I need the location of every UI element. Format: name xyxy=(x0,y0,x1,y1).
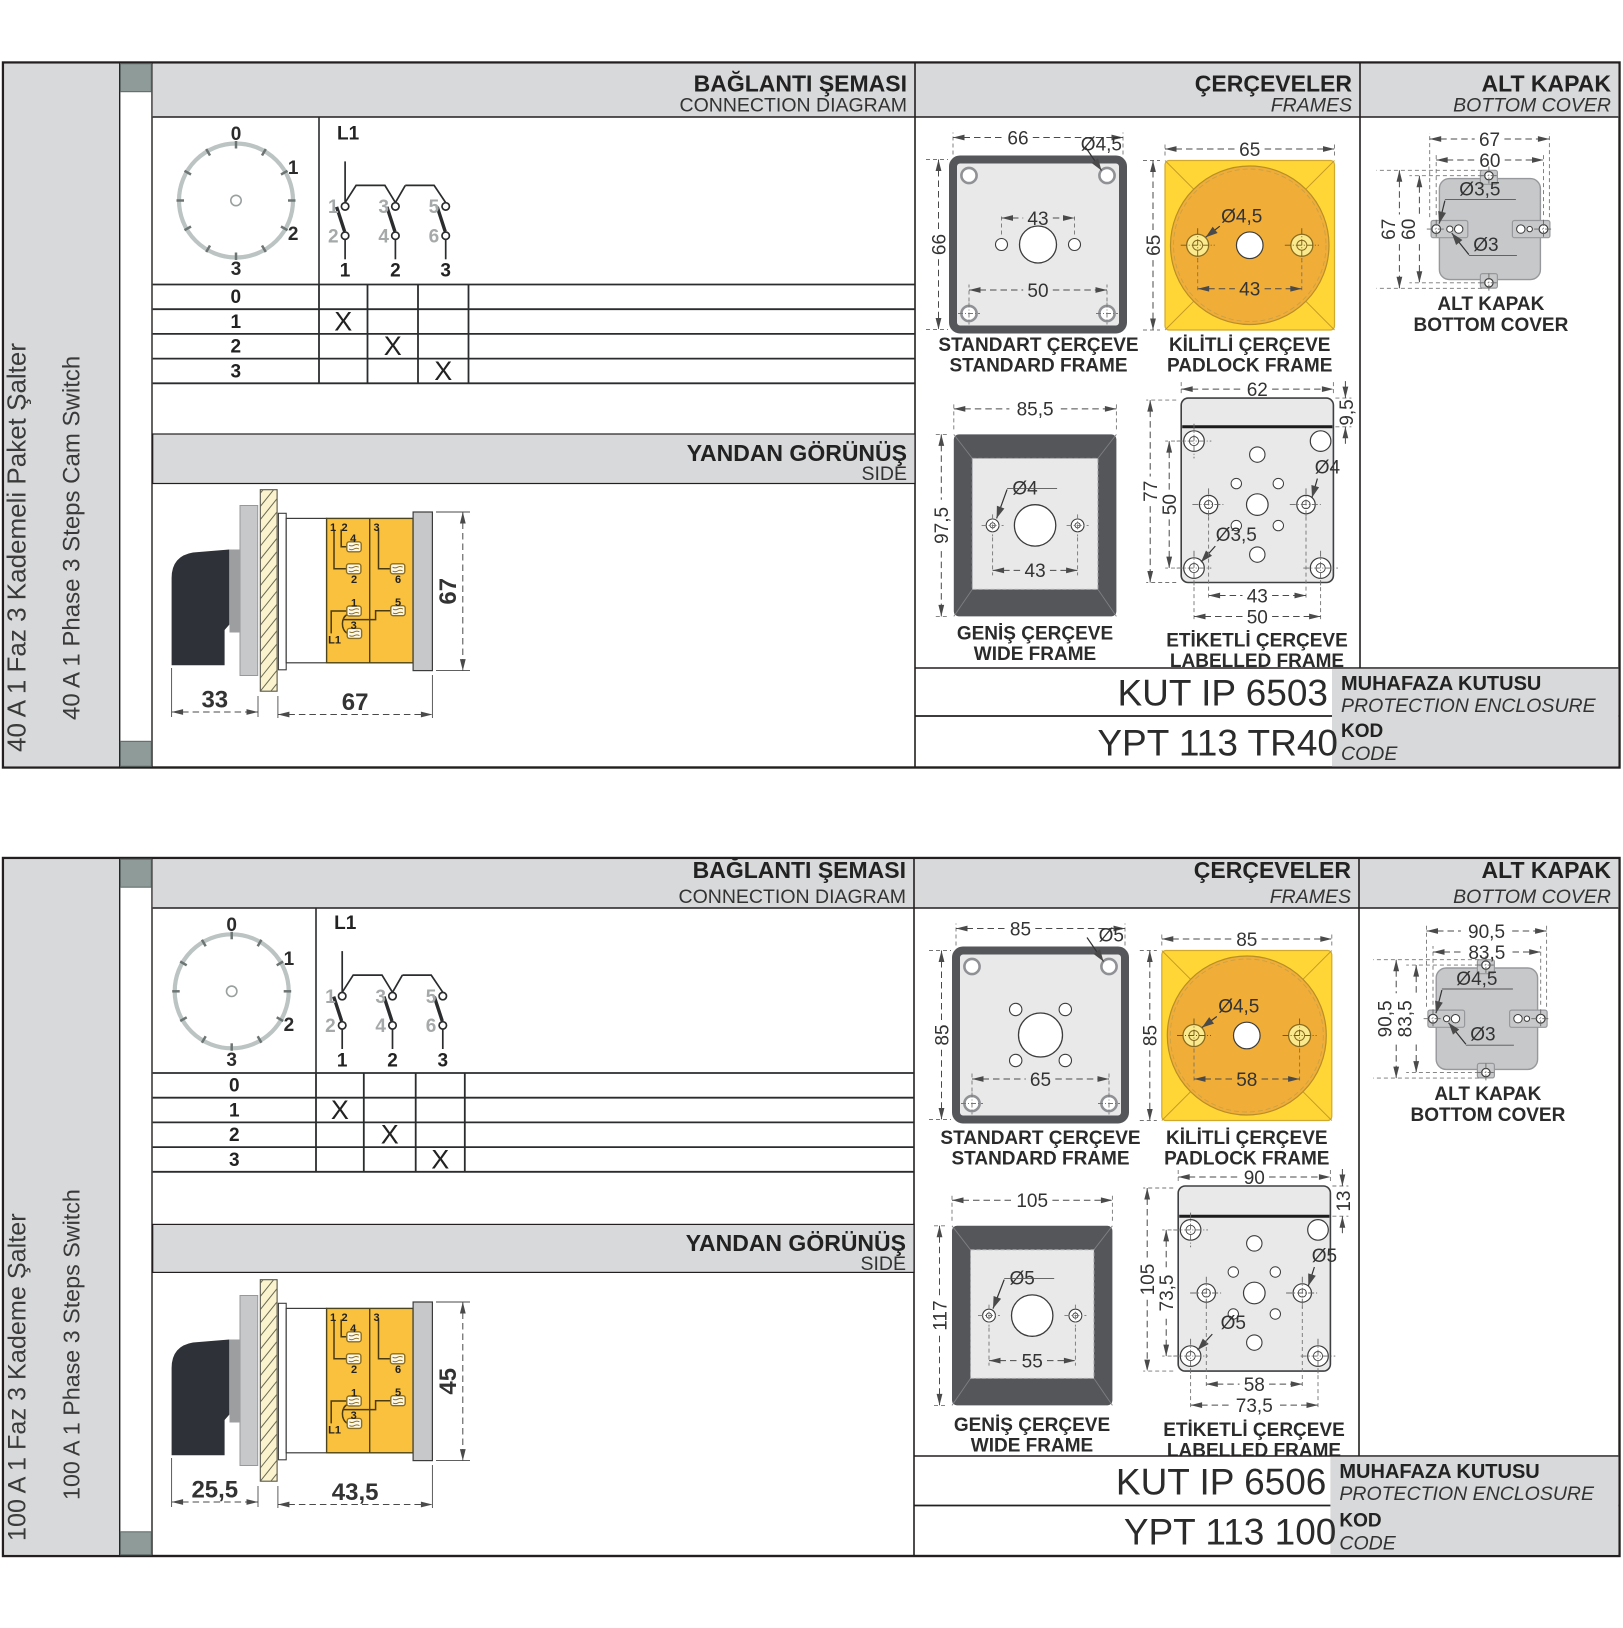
svg-text:Ø5: Ø5 xyxy=(1312,1246,1337,1267)
svg-text:65: 65 xyxy=(1144,235,1165,256)
svg-text:ÇERÇEVELER: ÇERÇEVELER xyxy=(1194,857,1352,883)
svg-text:3: 3 xyxy=(440,261,451,282)
svg-text:3: 3 xyxy=(226,1050,237,1071)
svg-text:X: X xyxy=(381,1120,399,1150)
svg-text:50: 50 xyxy=(1247,607,1268,628)
svg-text:Ø4: Ø4 xyxy=(1315,458,1341,479)
svg-text:GENİŞ ÇERÇEVE: GENİŞ ÇERÇEVE xyxy=(957,624,1113,645)
svg-text:1: 1 xyxy=(351,1388,357,1400)
svg-text:9,5: 9,5 xyxy=(1337,399,1358,425)
svg-text:85: 85 xyxy=(1010,919,1031,940)
svg-text:PADLOCK FRAME: PADLOCK FRAME xyxy=(1167,356,1332,377)
svg-text:STANDART ÇERÇEVE: STANDART ÇERÇEVE xyxy=(938,335,1138,356)
svg-text:X: X xyxy=(434,356,452,386)
svg-text:3: 3 xyxy=(231,259,242,280)
svg-text:1: 1 xyxy=(330,522,336,534)
svg-text:BOTTOM COVER: BOTTOM COVER xyxy=(1453,886,1611,908)
svg-text:Ø4,5: Ø4,5 xyxy=(1221,206,1262,227)
svg-text:KİLİTLİ ÇERÇEVE: KİLİTLİ ÇERÇEVE xyxy=(1166,1128,1328,1149)
svg-text:Ø3: Ø3 xyxy=(1470,1025,1495,1046)
svg-text:5: 5 xyxy=(395,1387,401,1399)
svg-text:1: 1 xyxy=(330,1312,336,1324)
svg-text:43: 43 xyxy=(1239,280,1260,301)
svg-text:85,5: 85,5 xyxy=(1017,400,1054,421)
svg-text:1: 1 xyxy=(325,987,336,1008)
svg-text:2: 2 xyxy=(387,1050,398,1071)
svg-text:LABELLED FRAME: LABELLED FRAME xyxy=(1170,651,1344,672)
svg-text:90,5: 90,5 xyxy=(1468,922,1505,943)
svg-text:STANDARD FRAME: STANDARD FRAME xyxy=(951,1149,1129,1170)
svg-text:85: 85 xyxy=(1236,930,1257,951)
svg-text:1: 1 xyxy=(328,197,339,218)
svg-text:BAĞLANTI ŞEMASI: BAĞLANTI ŞEMASI xyxy=(693,856,906,883)
svg-text:X: X xyxy=(431,1144,449,1174)
svg-text:100 A 1 Faz 3 Kademe Şalter: 100 A 1 Faz 3 Kademe Şalter xyxy=(4,1213,32,1541)
svg-text:62: 62 xyxy=(1247,380,1268,401)
svg-text:43: 43 xyxy=(1247,586,1268,607)
svg-text:Ø4,5: Ø4,5 xyxy=(1218,997,1259,1018)
svg-text:97,5: 97,5 xyxy=(932,507,953,544)
svg-text:40 A 1 Faz 3 Kademeli Paket Şa: 40 A 1 Faz 3 Kademeli Paket Şalter xyxy=(2,343,32,752)
svg-text:67: 67 xyxy=(1379,219,1400,240)
svg-text:50: 50 xyxy=(1027,281,1048,302)
svg-text:CONNECTION DIAGRAM: CONNECTION DIAGRAM xyxy=(679,95,907,117)
svg-text:73,5: 73,5 xyxy=(1157,1275,1178,1312)
svg-text:Ø5: Ø5 xyxy=(1099,926,1124,947)
svg-text:Ø3,5: Ø3,5 xyxy=(1216,525,1257,546)
svg-text:1: 1 xyxy=(284,949,295,970)
svg-text:105: 105 xyxy=(1016,1191,1048,1212)
svg-text:85: 85 xyxy=(932,1024,953,1045)
svg-text:2: 2 xyxy=(328,226,339,247)
svg-text:KUT IP 6506: KUT IP 6506 xyxy=(1116,1461,1327,1502)
svg-text:4: 4 xyxy=(375,1016,386,1037)
svg-text:85: 85 xyxy=(1141,1025,1162,1046)
svg-text:PROTECTION ENCLOSURE: PROTECTION ENCLOSURE xyxy=(1341,695,1597,717)
svg-text:YPT 113 TR40: YPT 113 TR40 xyxy=(1097,722,1338,763)
svg-text:SIDE: SIDE xyxy=(860,1253,906,1275)
svg-text:50: 50 xyxy=(1160,494,1181,515)
svg-text:ÇERÇEVELER: ÇERÇEVELER xyxy=(1195,71,1353,97)
svg-text:105: 105 xyxy=(1138,1264,1159,1296)
svg-text:ALT KAPAK: ALT KAPAK xyxy=(1434,1084,1541,1105)
svg-text:83,5: 83,5 xyxy=(1396,1000,1417,1037)
svg-text:58: 58 xyxy=(1244,1375,1265,1396)
svg-text:43: 43 xyxy=(1027,209,1048,230)
svg-text:77: 77 xyxy=(1141,481,1162,502)
svg-text:FRAMES: FRAMES xyxy=(1270,886,1351,908)
svg-text:FRAMES: FRAMES xyxy=(1271,95,1352,117)
svg-text:Ø3: Ø3 xyxy=(1473,235,1498,256)
svg-text:CONNECTION DIAGRAM: CONNECTION DIAGRAM xyxy=(678,886,906,908)
svg-text:2: 2 xyxy=(351,574,357,586)
svg-text:58: 58 xyxy=(1236,1070,1257,1091)
svg-text:1: 1 xyxy=(229,1100,240,1121)
svg-text:43,5: 43,5 xyxy=(332,1479,379,1506)
svg-text:LABELLED FRAME: LABELLED FRAME xyxy=(1167,1441,1341,1462)
svg-text:66: 66 xyxy=(1007,128,1028,149)
svg-text:KOD: KOD xyxy=(1341,721,1383,742)
svg-text:3: 3 xyxy=(231,361,242,382)
svg-text:1: 1 xyxy=(288,158,299,179)
svg-text:2: 2 xyxy=(351,1364,357,1376)
svg-text:1: 1 xyxy=(337,1050,348,1071)
svg-text:3: 3 xyxy=(351,620,357,632)
svg-text:45: 45 xyxy=(435,1368,462,1395)
svg-text:X: X xyxy=(334,306,352,336)
svg-text:5: 5 xyxy=(426,987,437,1008)
svg-text:117: 117 xyxy=(930,1300,951,1330)
svg-text:6: 6 xyxy=(429,226,440,247)
svg-text:Ø4,5: Ø4,5 xyxy=(1456,969,1497,990)
svg-text:3: 3 xyxy=(375,987,386,1008)
svg-text:WIDE FRAME: WIDE FRAME xyxy=(971,1436,1093,1457)
svg-text:6: 6 xyxy=(395,1364,401,1376)
svg-text:YPT 113 100: YPT 113 100 xyxy=(1124,1511,1337,1552)
svg-text:90: 90 xyxy=(1244,1168,1265,1189)
svg-text:SIDE: SIDE xyxy=(861,463,907,485)
svg-text:2: 2 xyxy=(288,224,299,245)
svg-text:1: 1 xyxy=(340,261,351,282)
svg-text:X: X xyxy=(384,331,402,361)
svg-text:X: X xyxy=(331,1095,349,1125)
svg-text:2: 2 xyxy=(342,522,348,534)
svg-text:4: 4 xyxy=(378,226,389,247)
svg-text:STANDART ÇERÇEVE: STANDART ÇERÇEVE xyxy=(940,1128,1140,1149)
svg-text:GENİŞ ÇERÇEVE: GENİŞ ÇERÇEVE xyxy=(954,1415,1110,1436)
svg-text:13: 13 xyxy=(1334,1191,1355,1212)
svg-text:ETİKETLİ ÇERÇEVE: ETİKETLİ ÇERÇEVE xyxy=(1163,1420,1345,1441)
svg-text:Ø5: Ø5 xyxy=(1221,1313,1246,1334)
svg-text:2: 2 xyxy=(342,1312,348,1324)
svg-text:2: 2 xyxy=(284,1015,295,1036)
svg-text:L1: L1 xyxy=(328,634,341,646)
svg-text:2: 2 xyxy=(325,1016,336,1037)
svg-text:3: 3 xyxy=(351,1410,357,1422)
svg-text:0: 0 xyxy=(226,915,237,936)
svg-text:4: 4 xyxy=(350,533,357,545)
svg-text:40 A 1 Phase 3 Steps Cam Switc: 40 A 1 Phase 3 Steps Cam Switch xyxy=(59,356,86,720)
svg-text:43: 43 xyxy=(1025,561,1046,582)
svg-text:60: 60 xyxy=(1479,151,1500,172)
svg-text:6: 6 xyxy=(395,574,401,586)
svg-text:1: 1 xyxy=(351,598,357,610)
svg-text:Ø4: Ø4 xyxy=(1012,478,1038,499)
svg-text:Ø4,5: Ø4,5 xyxy=(1081,135,1122,156)
svg-text:Ø5: Ø5 xyxy=(1010,1269,1035,1290)
svg-text:2: 2 xyxy=(229,1125,240,1146)
svg-text:0: 0 xyxy=(231,287,242,308)
svg-text:KOD: KOD xyxy=(1339,1511,1381,1532)
svg-text:L1: L1 xyxy=(334,913,357,934)
svg-text:60: 60 xyxy=(1399,219,1420,240)
svg-text:3: 3 xyxy=(374,1312,380,1324)
svg-text:65: 65 xyxy=(1030,1070,1051,1091)
svg-text:PROTECTION ENCLOSURE: PROTECTION ENCLOSURE xyxy=(1339,1483,1595,1505)
svg-text:67: 67 xyxy=(342,689,369,716)
svg-text:0: 0 xyxy=(231,124,242,145)
svg-text:67: 67 xyxy=(435,578,462,605)
svg-text:2: 2 xyxy=(231,337,242,358)
svg-text:6: 6 xyxy=(426,1016,437,1037)
svg-text:STANDARD FRAME: STANDARD FRAME xyxy=(949,356,1127,377)
svg-text:55: 55 xyxy=(1022,1351,1043,1372)
svg-text:MUHAFAZA KUTUSU: MUHAFAZA KUTUSU xyxy=(1341,673,1541,695)
svg-text:1: 1 xyxy=(231,312,242,333)
svg-text:0: 0 xyxy=(229,1076,240,1097)
svg-text:5: 5 xyxy=(395,597,401,609)
svg-text:4: 4 xyxy=(350,1323,357,1335)
svg-text:3: 3 xyxy=(229,1150,240,1171)
svg-text:ALT KAPAK: ALT KAPAK xyxy=(1482,857,1612,883)
svg-text:WIDE FRAME: WIDE FRAME xyxy=(974,644,1096,665)
svg-text:83,5: 83,5 xyxy=(1468,943,1505,964)
svg-text:66: 66 xyxy=(929,234,950,255)
svg-text:BOTTOM COVER: BOTTOM COVER xyxy=(1410,1105,1565,1126)
svg-text:CODE: CODE xyxy=(1341,743,1398,765)
svg-text:100 A 1 Phase 3 Steps Switch: 100 A 1 Phase 3 Steps Switch xyxy=(59,1189,85,1500)
svg-text:L1: L1 xyxy=(328,1424,341,1436)
svg-text:Ø3,5: Ø3,5 xyxy=(1459,180,1500,201)
svg-text:3: 3 xyxy=(378,197,389,218)
svg-text:PADLOCK FRAME: PADLOCK FRAME xyxy=(1164,1149,1329,1170)
svg-text:90,5: 90,5 xyxy=(1376,1000,1397,1037)
svg-text:73,5: 73,5 xyxy=(1236,1396,1273,1417)
svg-text:CODE: CODE xyxy=(1339,1533,1396,1555)
svg-text:ALT KAPAK: ALT KAPAK xyxy=(1482,71,1612,97)
svg-text:67: 67 xyxy=(1479,130,1500,151)
svg-text:KİLİTLİ ÇERÇEVE: KİLİTLİ ÇERÇEVE xyxy=(1169,335,1331,356)
svg-text:5: 5 xyxy=(429,197,440,218)
svg-text:L1: L1 xyxy=(337,123,360,144)
svg-text:MUHAFAZA KUTUSU: MUHAFAZA KUTUSU xyxy=(1339,1461,1539,1483)
svg-text:BAĞLANTI ŞEMASI: BAĞLANTI ŞEMASI xyxy=(694,70,907,97)
svg-text:65: 65 xyxy=(1239,140,1260,161)
svg-text:2: 2 xyxy=(390,261,401,282)
svg-text:3: 3 xyxy=(438,1050,449,1071)
svg-text:ETİKETLİ ÇERÇEVE: ETİKETLİ ÇERÇEVE xyxy=(1166,631,1348,652)
svg-text:BOTTOM COVER: BOTTOM COVER xyxy=(1453,95,1611,117)
svg-text:3: 3 xyxy=(374,522,380,534)
svg-text:ALT KAPAK: ALT KAPAK xyxy=(1437,294,1544,315)
svg-text:KUT IP 6503: KUT IP 6503 xyxy=(1118,673,1329,714)
svg-text:BOTTOM COVER: BOTTOM COVER xyxy=(1413,315,1568,336)
svg-text:25,5: 25,5 xyxy=(191,1477,238,1504)
svg-text:33: 33 xyxy=(201,687,228,714)
